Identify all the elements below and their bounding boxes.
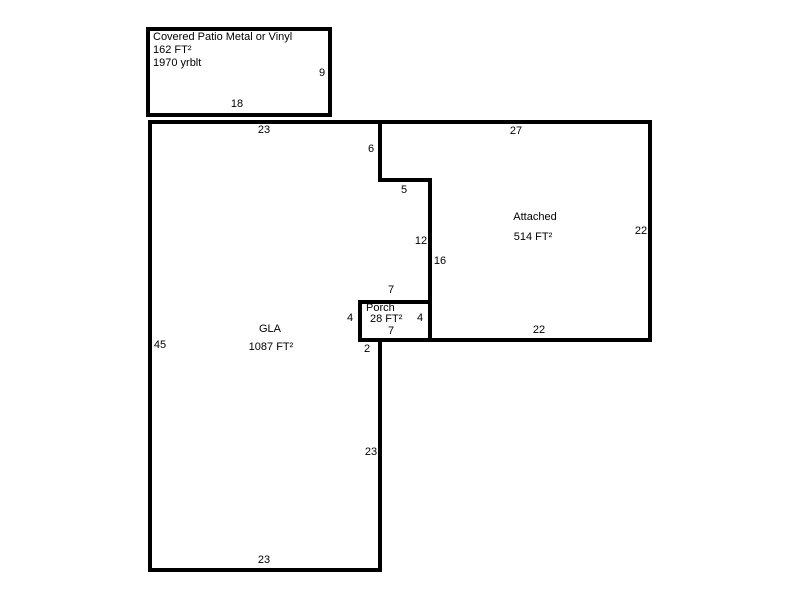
gla-dim-step-height: 6 [368,143,374,155]
gla-title: GLA [259,323,281,335]
attached-area: 514 FT² [514,231,553,243]
attached-dim-top: 27 [510,125,522,137]
patio-dim-right: 9 [319,67,325,79]
patio-yrblt: 1970 yrblt [153,57,292,70]
attached-dim-left: 16 [434,255,446,267]
gla-dim-bottom: 23 [258,554,270,566]
gla-dim-right-mid: 12 [415,235,427,247]
gla-dim-left: 45 [154,339,166,351]
gla-dim-top: 23 [258,124,270,136]
porch-dim-top: 7 [388,284,394,296]
gla-area: 1087 FT² [249,341,294,353]
porch-dim-left: 4 [347,312,353,324]
gla-dim-right-lower: 23 [365,446,377,458]
floorplan-canvas [0,0,800,600]
patio-label-block: Covered Patio Metal or Vinyl 162 FT² 197… [153,31,292,70]
patio-area: 162 FT² [153,44,292,57]
porch-dim-bottom: 7 [388,325,394,337]
porch-dim-right: 4 [417,312,423,324]
patio-title: Covered Patio Metal or Vinyl [153,31,292,44]
attached-title: Attached [513,211,556,223]
floorplan-sketch: Covered Patio Metal or Vinyl 162 FT² 197… [0,0,800,600]
patio-dim-bottom: 18 [231,98,243,110]
porch-area: 28 FT² [370,313,402,326]
attached-dim-right: 22 [635,225,647,237]
gla-dim-notch: 2 [364,343,370,355]
gla-dim-step-width: 5 [401,184,407,196]
attached-dim-bottom: 22 [533,324,545,336]
